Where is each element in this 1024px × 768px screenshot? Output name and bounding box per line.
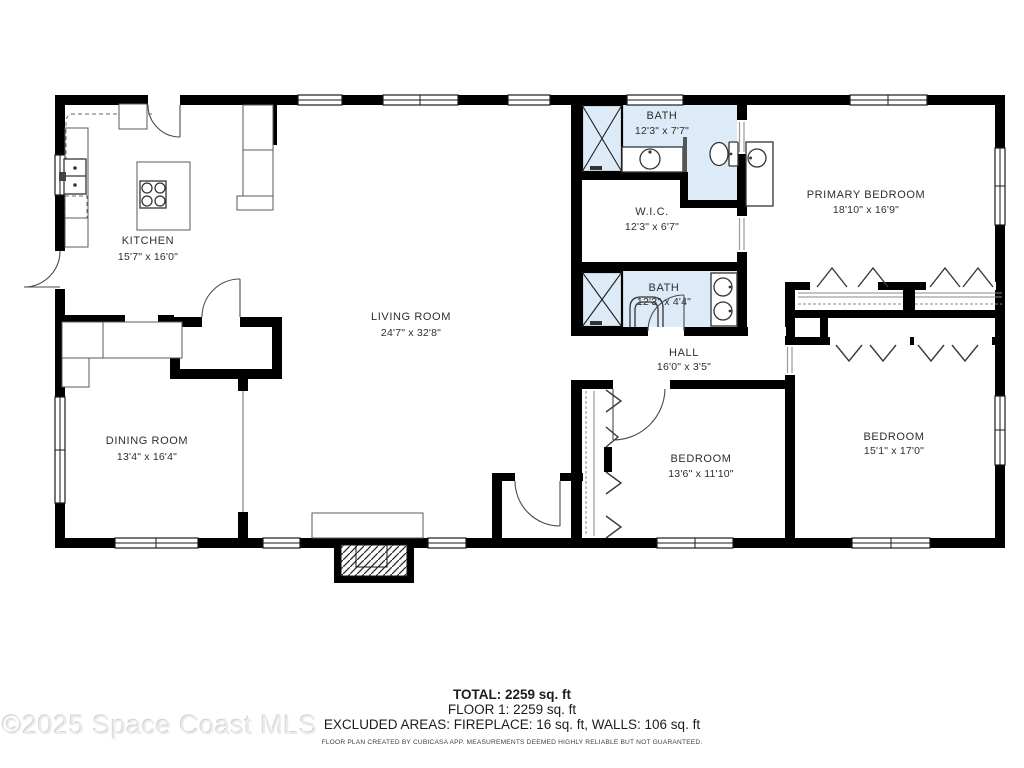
window [657,538,733,548]
door-left-exterior [24,251,60,287]
bedroom2-dims: 15'1" x 17'0" [864,445,924,457]
living-room-dims: 24'7" x 32'8" [381,327,441,339]
door-pantry [202,279,240,317]
bedroom2-closet-bifold-doors [836,345,978,361]
wall-openings [55,95,996,481]
pantry-cabinet [243,105,273,150]
bath2-dims: 12'3" x 4'4" [637,296,691,308]
fridge [119,104,147,129]
pantry-cabinet [243,150,273,196]
half-wall [683,137,687,172]
fireplace [341,545,407,576]
primary-vanity [746,142,773,206]
window [995,148,1005,225]
hearth [312,513,423,538]
dining-room-dims: 13'4" x 16'4" [117,451,177,463]
window [995,396,1005,465]
hall-label: HALL [669,347,699,359]
bath2-label: BATH [649,282,680,294]
bedroom2-label: BEDROOM [863,431,924,443]
dining-room-label: DINING ROOM [106,435,188,447]
window [115,538,198,548]
primary-bedroom-label: PRIMARY BEDROOM [807,189,926,201]
window [428,538,466,548]
window [850,95,927,105]
living-room-label: LIVING ROOM [371,311,451,323]
counter [237,196,273,210]
double-vanity [711,273,737,326]
door-entry-alcove [515,481,560,526]
window [55,397,65,503]
window [383,95,458,105]
mls-watermark: ©2025 Space Coast MLS [2,710,318,741]
window [508,95,550,105]
closet-rods [798,293,1002,304]
kitchen-fixtures [59,104,273,247]
bedroom1-dims: 13'6" x 11'10" [668,468,734,480]
wic-label: W.I.C. [635,206,669,218]
bath1-label: BATH [647,110,678,122]
door-hall-bedroom [613,389,665,440]
toilet [710,142,738,166]
bedroom1-label: BEDROOM [670,453,731,465]
room-labels: KITCHEN 15'7" x 16'0" LIVING ROOM 24'7" … [106,110,926,480]
window [852,538,930,548]
window [627,95,683,105]
bedroom1-closet [586,390,621,538]
floorplan-page: KITCHEN 15'7" x 16'0" LIVING ROOM 24'7" … [0,0,1024,768]
hall-dims: 16'0" x 3'5" [657,361,711,373]
window [263,538,300,548]
primary-bedroom-dims: 18'10" x 16'9" [833,204,899,216]
total-area-text: TOTAL: 2259 sq. ft [0,687,1024,702]
bath-vanity [622,147,683,172]
bath1-dims: 12'3" x 7'7" [635,125,689,137]
primary-fixtures [746,142,773,206]
wic-dims: 12'3" x 6'7" [625,221,679,233]
floorplan-drawing: KITCHEN 15'7" x 16'0" LIVING ROOM 24'7" … [0,0,1024,768]
door-kitchen-entry [148,105,180,137]
window [298,95,342,105]
kitchen-dims: 15'7" x 16'0" [118,251,178,263]
kitchen-label: KITCHEN [122,235,174,247]
